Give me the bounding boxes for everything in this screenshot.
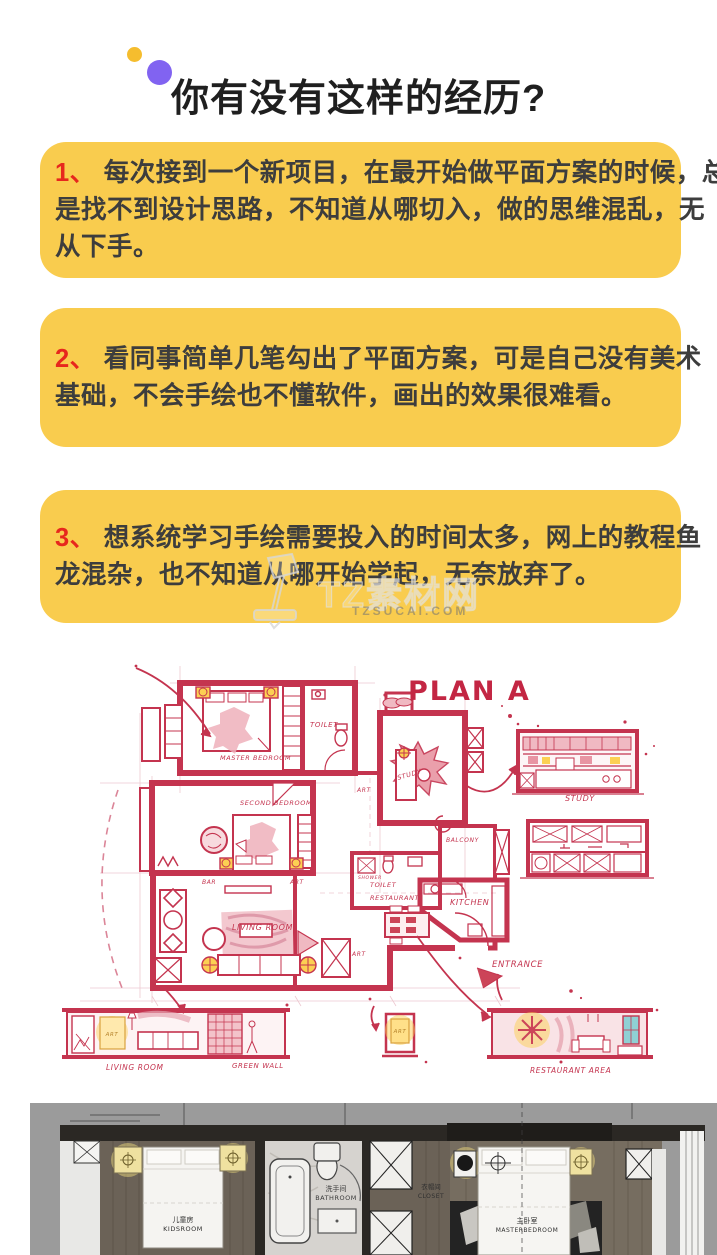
restaurant-elevation: [487, 1010, 653, 1057]
room-label-art3: ART: [351, 951, 366, 958]
pain-point-line: 1、每次接到一个新项目，在最开始做平面方案的时候，总: [55, 155, 669, 192]
pain-point-bubble: 3、想系统学习手绘需要投入的时间太多，网上的教程鱼龙混杂，也不知道从哪开始学起，…: [40, 490, 681, 623]
elev-label-greenwall: GREEN WALL: [232, 1062, 284, 1070]
promo-page: 你有没有这样的经历? 1、每次接到一个新项目，在最开始做平面方案的时候，总是找不…: [0, 0, 717, 1255]
plan-title: PLAN A: [408, 676, 531, 707]
room-label-entrance: ENTRANCE: [492, 960, 543, 970]
sketch-arc: [102, 790, 122, 988]
pain-point-number: 3、: [55, 524, 96, 552]
room-label-closet-cn: 衣帽间: [421, 1182, 441, 1191]
room-label-toilet2: TOILET: [370, 881, 397, 889]
study-room: [383, 698, 451, 832]
study-elevation: [512, 731, 644, 794]
room-label-shower: SHOWER: [358, 875, 382, 881]
pain-point-line: 龙混杂，也不知道从哪开始学起，无奈放弃了。: [55, 557, 669, 594]
kidsroom: 儿童房 KIDSROOM: [100, 1141, 255, 1255]
closet: 衣帽间 CLOSET: [370, 1141, 450, 1255]
svg-text:ART: ART: [105, 1032, 119, 1038]
elev-label-study: STUDY: [565, 794, 595, 803]
restaurant-kitchen: [385, 880, 505, 946]
page-title: 你有没有这样的经历?: [171, 67, 546, 122]
room-label-master-cn: 主卧室: [517, 1216, 538, 1225]
room-label-bar: BAR: [202, 879, 216, 886]
room-label-art1: ART: [356, 787, 371, 794]
pain-point-line: 是找不到设计思路，不知道从哪切入，做的思维混乱，无: [55, 192, 669, 229]
elev-label-restaurant: RESTAURANT AREA: [530, 1066, 611, 1075]
room-label-closet-en: CLOSET: [418, 1193, 444, 1200]
yellow-dot-icon: [127, 47, 142, 62]
sketch-floor-plan: ART ART: [40, 658, 690, 1098]
second-bed: [158, 783, 303, 871]
room-label-balcony: BALCONY: [446, 837, 480, 844]
room-label-bathroom-en: BATHROOM: [315, 1194, 357, 1202]
pain-point-line: 从下手。: [55, 229, 669, 266]
room-label-restaurant: RESTAURANT: [370, 894, 420, 902]
svg-text:ART: ART: [393, 1029, 407, 1035]
room-label-toilet1: TOILET: [310, 721, 338, 729]
rendered-floor-plan: 儿童房 KIDSROOM 洗手间 BATHROOM: [30, 1103, 717, 1255]
room-label-living: LIVING ROOM: [232, 923, 293, 932]
room-label-master: MASTER BEDROOM: [220, 754, 291, 762]
pain-point-number: 2、: [55, 345, 96, 373]
toilet2-fixtures: [358, 856, 422, 873]
bathroom: 洗手间 BATHROOM: [265, 1141, 362, 1255]
living-room-elevation: ART: [62, 1010, 290, 1057]
purple-dot-icon: [147, 60, 172, 85]
room-label-kitchen: KITCHEN: [450, 898, 489, 907]
pain-point-number: 1、: [55, 159, 96, 187]
kitchen-elevation: [520, 821, 654, 878]
elev-label-living: LIVING ROOM: [106, 1063, 164, 1072]
pain-point-line: 3、想系统学习手绘需要投入的时间太多，网上的教程鱼: [55, 520, 669, 557]
art-panel-elevation: ART: [382, 1014, 418, 1056]
room-label-second: SECOND BEDROOM: [240, 799, 312, 807]
room-label-kidsroom-en: KIDSROOM: [163, 1225, 203, 1233]
room-label-master-en: MASTERBEDROOM: [496, 1227, 559, 1234]
room-label-bathroom-cn: 洗手间: [326, 1184, 347, 1193]
toilet1-fixtures: [312, 690, 347, 770]
room-label-kidsroom-cn: 儿童房: [173, 1215, 194, 1224]
pain-point-bubble: 1、每次接到一个新项目，在最开始做平面方案的时候，总是找不到设计思路，不知道从哪…: [40, 142, 681, 278]
pain-point-line: 2、看同事简单几笔勾出了平面方案，可是自己没有美术: [55, 341, 669, 378]
pain-point-bubble: 2、看同事简单几笔勾出了平面方案，可是自己没有美术基础，不会手绘也不懂软件，画出…: [40, 308, 681, 447]
pain-point-line: 基础，不会手绘也不懂软件，画出的效果很难看。: [55, 378, 669, 415]
room-label-art2: ART: [289, 879, 304, 886]
